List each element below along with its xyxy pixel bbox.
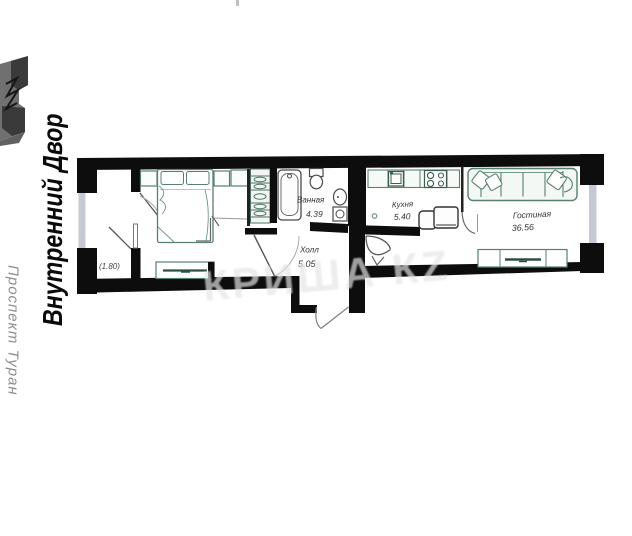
svg-text:(1.80): (1.80) — [99, 262, 120, 271]
svg-text:Проспект Туран: Проспект Туран — [5, 265, 22, 396]
svg-text:Кухня: Кухня — [392, 199, 414, 209]
svg-text:Ванная: Ванная — [297, 196, 325, 205]
svg-text:4.39: 4.39 — [306, 209, 323, 219]
svg-text:Гостиная: Гостиная — [513, 208, 552, 220]
svg-text:36.56: 36.56 — [512, 222, 535, 233]
svg-text:5.40: 5.40 — [394, 211, 411, 222]
svg-text:Внутренний Двор: Внутренний Двор — [38, 113, 68, 326]
